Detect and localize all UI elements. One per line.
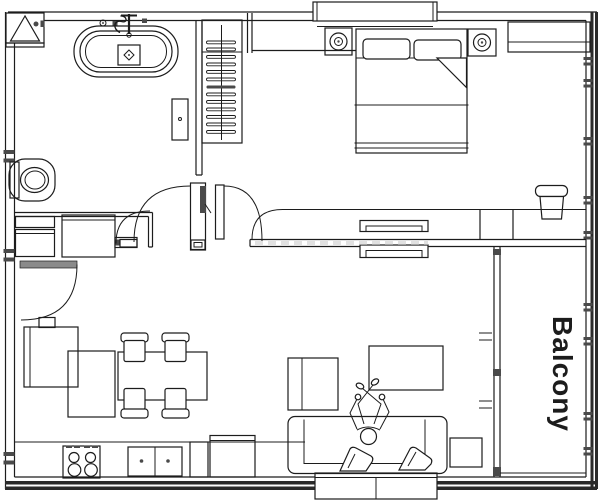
door-swing-arc-right <box>224 186 262 241</box>
wall-bottom-band <box>5 481 597 485</box>
balcony-partition <box>494 247 500 478</box>
dining-chair <box>121 333 148 362</box>
arm <box>350 399 357 429</box>
bay-window-top <box>313 2 437 27</box>
chair-seat <box>540 197 564 220</box>
washing-machine <box>62 215 115 257</box>
foot <box>355 382 364 390</box>
sideboard <box>68 351 115 417</box>
burner <box>69 453 79 463</box>
ceiling-speaker-icon <box>468 29 496 56</box>
dresser <box>508 22 590 52</box>
partition-wall <box>250 210 586 258</box>
bedroom <box>325 22 590 219</box>
entry-door <box>20 261 77 320</box>
bathroom-wall <box>196 21 202 175</box>
burner <box>85 464 98 477</box>
laundry-nook <box>15 211 153 320</box>
kitchen-cabinet <box>190 442 208 477</box>
door-post <box>191 240 205 250</box>
blanket-band <box>355 105 469 148</box>
valve-icon <box>34 22 39 27</box>
foot <box>370 378 380 387</box>
balcony: Balcony <box>479 247 586 478</box>
floor-plan: Balcony <box>0 0 602 500</box>
vanity-cabinets <box>16 217 55 257</box>
wall-shelf <box>172 99 188 140</box>
sofa-pillow <box>340 447 373 471</box>
door-swing-arc-left <box>134 186 191 242</box>
hand <box>355 394 361 400</box>
door-leaf-dark <box>200 186 206 213</box>
coffee-table <box>369 346 443 390</box>
bay-window-bottom <box>315 473 437 499</box>
bathtub <box>74 26 178 77</box>
wall-right-band <box>591 12 594 489</box>
dining-chair <box>162 389 189 419</box>
folded-blanket-corner <box>437 58 467 88</box>
head <box>361 429 377 445</box>
side-table <box>450 438 482 467</box>
dining-chair <box>162 333 189 362</box>
wardrobe-with-hangers <box>202 13 356 143</box>
desk-chair <box>536 186 568 220</box>
wall-right-band-outer <box>595 12 598 489</box>
leg <box>362 388 381 424</box>
door-leaf <box>20 261 77 268</box>
stove <box>63 446 100 479</box>
chair-back <box>536 186 568 197</box>
toilet <box>9 159 55 201</box>
sofa-pillow <box>399 447 432 470</box>
bed <box>355 29 469 153</box>
kitchen-sink <box>128 447 182 476</box>
door-leaf-open <box>216 185 225 239</box>
floor-plan-canvas: Balcony <box>0 0 602 500</box>
kitchen <box>15 436 305 479</box>
living-room <box>15 318 482 479</box>
refrigerator <box>24 318 78 388</box>
bed-pillow <box>363 39 410 59</box>
duct-shaft <box>6 13 45 47</box>
burner <box>86 453 96 463</box>
outer-walls <box>4 12 599 490</box>
sofa <box>288 358 447 474</box>
door-swing-arc <box>21 265 77 321</box>
balcony-label: Balcony <box>547 316 578 432</box>
valve-icon <box>41 21 45 28</box>
dining-chair <box>121 389 148 419</box>
desk <box>480 210 513 240</box>
chaise-lounge <box>288 358 338 410</box>
door-frame-ticks <box>479 333 492 408</box>
bed-pillow <box>414 40 461 60</box>
sliding-curve <box>252 210 283 240</box>
burner <box>68 464 81 477</box>
arm <box>380 399 389 429</box>
bathroom <box>6 13 202 201</box>
wall-bottom-band-outer <box>5 487 597 491</box>
hand <box>379 394 385 400</box>
